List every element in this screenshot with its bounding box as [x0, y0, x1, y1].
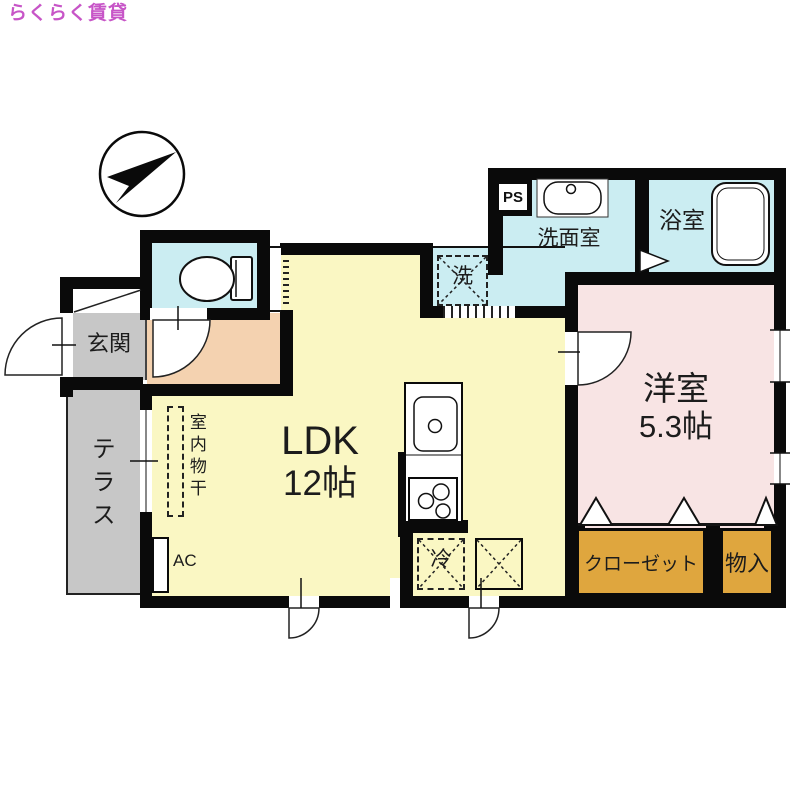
bath-folding-door-icon: [640, 250, 668, 272]
entrance-label: 玄関: [73, 332, 145, 355]
washing-machine-label: 洗: [437, 266, 488, 288]
ldk-size-label: 12帖: [240, 466, 400, 503]
ldk-label: LDK: [240, 420, 400, 462]
porch-diagonal-line: [74, 290, 141, 312]
compass-icon: [100, 132, 184, 216]
toilet-icon: [180, 257, 252, 301]
closet-door-triangle-1: [580, 498, 612, 525]
ldk-door-b-arc: [469, 608, 499, 638]
ldk-door-a-arc: [289, 608, 319, 638]
washroom-label: 洗面室: [503, 228, 635, 250]
refrigerator-label: 冷: [417, 549, 465, 571]
western-room-size-label: 5.3帖: [586, 411, 766, 444]
storage-x: [477, 540, 521, 588]
washbasin-icon: [537, 179, 608, 217]
indoor-drying-label: 室内物干: [187, 413, 205, 501]
toilet-door-arc: [153, 320, 210, 377]
terrace-label: テラス: [88, 436, 113, 535]
kitchen-sink-icon: [406, 397, 461, 455]
bathtub-icon: [712, 183, 769, 265]
entrance-door-arc: [5, 318, 62, 375]
western-room-label: 洋室: [586, 372, 766, 407]
stove-burners-icon: [419, 484, 451, 518]
closet-door-triangle-2: [668, 498, 700, 525]
ac-label: AC: [173, 552, 197, 570]
bathroom-label: 浴室: [645, 208, 719, 232]
closet-door-triangle-3: [755, 498, 777, 525]
floorplan-canvas: らくらく賃貸: [0, 0, 800, 800]
